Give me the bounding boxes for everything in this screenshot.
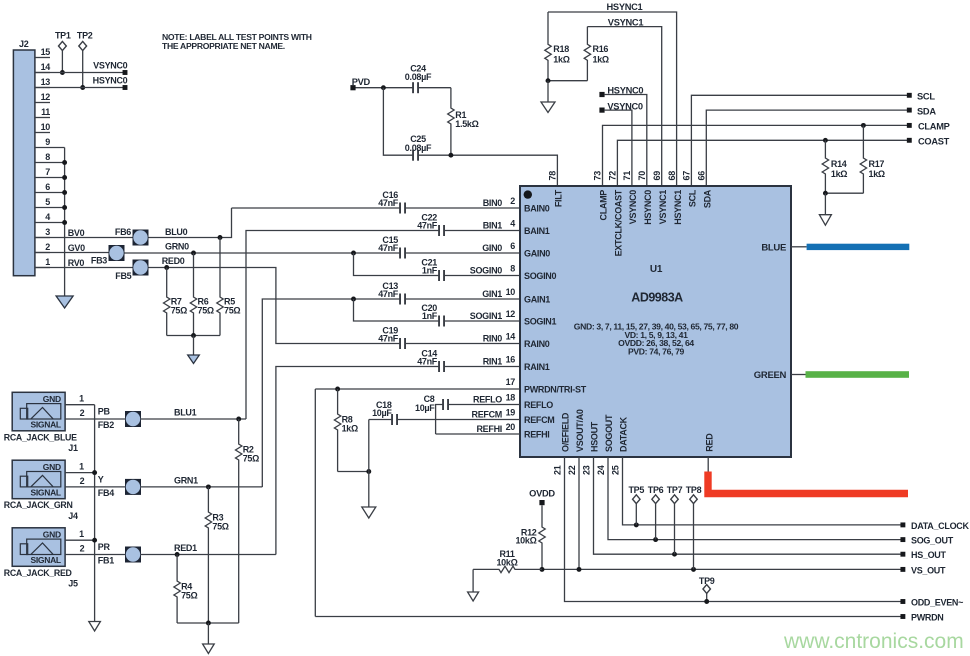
svg-text:DATACK: DATACK [619,416,629,452]
svg-text:DATA_CLOCK: DATA_CLOCK [911,521,969,531]
svg-text:GV0: GV0 [68,243,85,253]
svg-text:AD9983A: AD9983A [631,291,683,305]
svg-text:R17: R17 [869,159,885,169]
svg-text:www.cntronics.com: www.cntronics.com [783,630,964,653]
svg-text:68: 68 [667,171,677,181]
svg-text:1: 1 [45,257,50,267]
svg-text:75Ω: 75Ω [181,591,197,601]
svg-text:1kΩ: 1kΩ [553,55,569,65]
svg-text:2: 2 [80,544,85,554]
svg-text:COAST: COAST [918,137,950,147]
svg-text:18: 18 [506,393,516,403]
svg-text:RAIN1: RAIN1 [524,362,550,372]
svg-text:GND: GND [43,394,61,404]
svg-text:REFHI: REFHI [476,424,502,434]
svg-text:8: 8 [510,264,515,274]
svg-text:1kΩ: 1kΩ [869,169,885,179]
svg-text:RV0: RV0 [68,258,85,268]
svg-text:BLU1: BLU1 [174,407,197,417]
svg-text:SOGIN0: SOGIN0 [470,266,503,276]
svg-text:FB2: FB2 [98,420,114,430]
svg-text:7: 7 [45,167,50,177]
svg-text:SOGIN1: SOGIN1 [470,311,503,321]
svg-text:47nF: 47nF [378,243,399,253]
svg-text:R16: R16 [593,44,609,54]
svg-text:J5: J5 [68,579,78,589]
svg-text:47nF: 47nF [378,334,399,344]
svg-text:Y: Y [98,475,104,485]
svg-text:12: 12 [506,309,516,319]
svg-text:72: 72 [608,171,618,181]
svg-text:1: 1 [79,394,84,404]
svg-text:R14: R14 [831,159,847,169]
svg-text:RIN1: RIN1 [483,357,503,367]
svg-text:J4: J4 [68,511,78,521]
svg-text:16: 16 [506,355,516,365]
svg-text:REFLO: REFLO [473,395,502,405]
svg-text:10kΩ: 10kΩ [515,536,536,546]
svg-text:RCA_JACK_GRN: RCA_JACK_GRN [4,500,73,510]
svg-text:THE APPROPRIATE NET NAME.: THE APPROPRIATE NET NAME. [162,41,285,51]
svg-text:GRN1: GRN1 [174,475,198,485]
svg-text:U1: U1 [650,264,663,275]
svg-text:10µF: 10µF [372,408,392,418]
svg-text:0.08µF: 0.08µF [405,143,432,153]
svg-text:70: 70 [637,171,647,181]
svg-text:PR: PR [98,542,111,552]
svg-text:TP7: TP7 [667,485,683,495]
svg-text:69: 69 [652,171,662,181]
svg-text:VSYNC0: VSYNC0 [93,61,128,71]
svg-text:GREEN: GREEN [754,370,787,381]
svg-text:REFHI: REFHI [524,429,550,439]
svg-text:10kΩ: 10kΩ [496,557,517,567]
svg-text:1: 1 [79,462,84,472]
svg-text:47nF: 47nF [378,289,399,299]
svg-text:19: 19 [506,408,516,418]
svg-text:8: 8 [45,152,50,162]
svg-text:FB6: FB6 [115,227,131,237]
svg-text:PVD: 74, 76, 79: PVD: 74, 76, 79 [628,347,684,357]
svg-text:CLAMP: CLAMP [599,190,609,221]
svg-text:RED1: RED1 [174,543,197,553]
svg-text:TP2: TP2 [77,30,93,40]
svg-text:12: 12 [41,92,51,102]
svg-text:HSYNC1: HSYNC1 [607,2,643,12]
svg-text:BIN0: BIN0 [483,198,503,208]
svg-text:SOGOUT: SOGOUT [604,414,614,452]
svg-text:RCA_JACK_BLUE: RCA_JACK_BLUE [4,432,77,442]
svg-text:47nF: 47nF [417,221,438,231]
svg-text:22: 22 [567,465,577,475]
svg-text:10: 10 [41,122,51,132]
svg-text:HSOUT: HSOUT [590,421,600,452]
svg-text:6: 6 [45,182,50,192]
svg-text:10: 10 [506,287,516,297]
svg-text:VSYNC1: VSYNC1 [658,190,668,225]
svg-text:ODD_EVEN~: ODD_EVEN~ [911,598,963,608]
svg-text:RED0: RED0 [162,256,185,266]
svg-text:10µF: 10µF [415,403,435,413]
svg-text:BIN1: BIN1 [483,221,503,231]
svg-text:1kΩ: 1kΩ [593,55,609,65]
svg-text:O/EFIELD: O/EFIELD [561,412,571,452]
svg-text:73: 73 [593,171,603,181]
svg-text:4: 4 [510,219,515,229]
svg-text:66: 66 [697,171,707,181]
svg-text:1nF: 1nF [422,266,438,276]
svg-text:23: 23 [582,465,592,475]
svg-text:REFCM: REFCM [524,415,555,425]
svg-text:HSYNC0: HSYNC0 [93,75,128,85]
svg-text:REFLO: REFLO [524,400,553,410]
svg-text:17: 17 [506,377,516,387]
svg-text:GAIN0: GAIN0 [524,248,550,258]
svg-text:21: 21 [553,465,563,475]
svg-text:GND: GND [43,462,61,472]
svg-text:J1: J1 [68,443,78,453]
svg-text:1nF: 1nF [422,311,438,321]
svg-text:47nF: 47nF [417,357,438,367]
svg-text:GIN1: GIN1 [482,289,502,299]
svg-text:0.08µF: 0.08µF [405,72,432,82]
svg-text:11: 11 [41,107,50,117]
svg-text:13: 13 [41,77,51,87]
svg-text:VSOUT/A0: VSOUT/A0 [575,409,585,452]
svg-text:FB3: FB3 [91,256,107,266]
svg-text:25: 25 [611,465,621,475]
svg-text:PWRDN: PWRDN [911,613,944,623]
svg-text:TP5: TP5 [628,485,644,495]
svg-text:RED: RED [705,433,715,452]
svg-text:BLUE: BLUE [761,243,786,254]
svg-text:BAIN0: BAIN0 [524,203,550,213]
svg-text:PB: PB [98,407,111,417]
svg-text:VS_OUT: VS_OUT [911,565,946,575]
svg-text:75Ω: 75Ω [171,306,187,316]
svg-text:FB4: FB4 [98,488,114,498]
svg-text:TP8: TP8 [686,485,702,495]
svg-text:PWRDN/TRI-ST: PWRDN/TRI-ST [524,384,587,394]
svg-text:2: 2 [80,476,85,486]
svg-text:1kΩ: 1kΩ [831,169,847,179]
svg-text:EXTCLK/COAST: EXTCLK/COAST [614,189,624,256]
svg-text:HS_OUT: HS_OUT [911,550,947,560]
svg-text:GND: GND [43,529,61,539]
svg-text:14: 14 [506,332,516,342]
svg-text:SIGNAL: SIGNAL [30,420,60,430]
svg-text:R18: R18 [553,44,569,54]
svg-text:HSYNC0: HSYNC0 [643,190,653,225]
svg-text:14: 14 [41,62,51,72]
svg-text:SOGIN1: SOGIN1 [524,316,557,326]
svg-text:HSYNC0: HSYNC0 [607,85,643,95]
svg-text:HSYNC1: HSYNC1 [673,190,683,225]
svg-text:SCL: SCL [688,189,698,207]
svg-text:24: 24 [596,465,606,475]
svg-text:SIGNAL: SIGNAL [30,488,60,498]
svg-text:78: 78 [548,171,558,181]
svg-text:GAIN1: GAIN1 [524,294,550,304]
svg-text:75Ω: 75Ω [198,306,214,316]
svg-text:SDA: SDA [917,106,936,116]
svg-text:4: 4 [45,212,50,222]
svg-text:REFCM: REFCM [472,410,503,420]
svg-text:1.5kΩ: 1.5kΩ [455,119,478,129]
svg-text:TP1: TP1 [55,30,71,40]
svg-text:20: 20 [506,422,516,432]
svg-text:SDA: SDA [703,189,713,208]
svg-text:2: 2 [80,408,85,418]
svg-text:75Ω: 75Ω [212,522,228,532]
svg-text:71: 71 [622,171,632,181]
svg-text:RAIN0: RAIN0 [524,339,550,349]
svg-text:VSYNC0: VSYNC0 [628,190,638,225]
svg-text:75Ω: 75Ω [224,306,240,316]
svg-text:67: 67 [682,171,692,181]
svg-text:J2: J2 [19,39,29,49]
svg-text:2: 2 [45,242,50,252]
svg-text:FILT: FILT [554,189,564,207]
svg-text:SOGIN0: SOGIN0 [524,271,557,281]
svg-text:1kΩ: 1kΩ [342,424,358,434]
svg-text:SCL: SCL [917,91,935,101]
svg-text:SOG_OUT: SOG_OUT [911,536,954,546]
svg-text:SIGNAL: SIGNAL [30,555,60,565]
svg-text:9: 9 [45,137,50,147]
svg-text:75Ω: 75Ω [243,454,259,464]
svg-text:RIN0: RIN0 [483,334,503,344]
svg-text:1: 1 [79,529,84,539]
svg-text:CLAMP: CLAMP [918,121,950,131]
svg-text:BV0: BV0 [68,228,85,238]
svg-text:OVDD: OVDD [529,488,555,498]
svg-text:GIN0: GIN0 [482,243,502,253]
svg-text:6: 6 [510,241,515,251]
svg-text:RCA_JACK_RED: RCA_JACK_RED [4,568,72,578]
svg-text:FB5: FB5 [115,271,131,281]
svg-text:GRN0: GRN0 [165,242,189,252]
svg-text:BAIN1: BAIN1 [524,226,550,236]
svg-text:BLU0: BLU0 [165,227,188,237]
svg-text:FB1: FB1 [98,556,114,566]
svg-text:5: 5 [45,197,50,207]
svg-text:47nF: 47nF [378,198,399,208]
svg-text:TP6: TP6 [648,485,664,495]
svg-text:2: 2 [510,196,515,206]
svg-text:3: 3 [45,227,50,237]
svg-text:15: 15 [41,47,51,57]
